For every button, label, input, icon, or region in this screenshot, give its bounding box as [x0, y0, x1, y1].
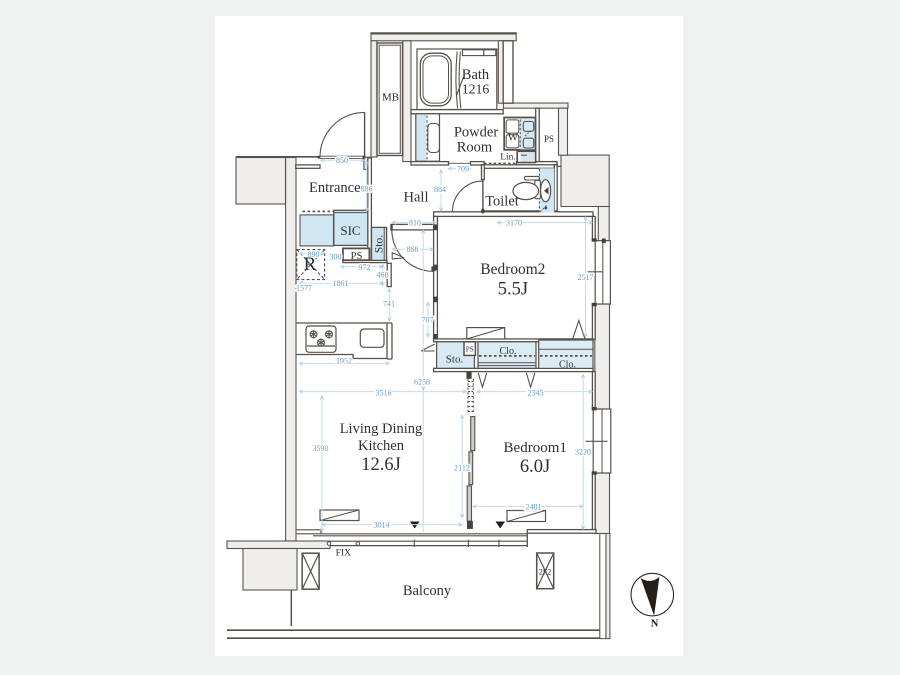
svg-text:3014: 3014: [374, 521, 390, 530]
svg-text:5.5J: 5.5J: [498, 280, 528, 300]
svg-text:2F2: 2F2: [539, 568, 551, 577]
svg-text:850: 850: [336, 156, 348, 165]
svg-text:Room: Room: [457, 140, 493, 156]
svg-text:Clo.: Clo.: [559, 360, 576, 371]
svg-text:SIC: SIC: [340, 223, 360, 238]
svg-text:1861: 1861: [333, 279, 349, 288]
svg-text:Kitchen: Kitchen: [358, 438, 405, 454]
svg-text:707: 707: [422, 316, 434, 325]
svg-text:Living Dining: Living Dining: [340, 421, 423, 437]
svg-text:741: 741: [383, 300, 395, 309]
svg-text:Sto.: Sto.: [374, 235, 386, 253]
svg-text:3590: 3590: [313, 444, 329, 453]
svg-text:Hall: Hall: [404, 190, 429, 206]
svg-text:12.6J: 12.6J: [361, 455, 401, 475]
svg-text:PS: PS: [351, 251, 363, 262]
svg-text:Bedroom2: Bedroom2: [480, 261, 545, 278]
svg-text:6258: 6258: [414, 378, 430, 387]
svg-text:1216: 1216: [462, 82, 490, 97]
svg-text:Sto.: Sto.: [446, 354, 464, 366]
svg-text:810: 810: [409, 219, 421, 228]
svg-text:Lin.: Lin.: [500, 153, 516, 163]
svg-text:Clo.: Clo.: [500, 346, 517, 357]
svg-text:Bedroom1: Bedroom1: [504, 440, 567, 456]
svg-text:Entrance: Entrance: [309, 180, 361, 196]
svg-text:6.0J: 6.0J: [520, 457, 550, 477]
svg-text:468: 468: [377, 270, 389, 279]
svg-text:Toilet: Toilet: [485, 194, 519, 210]
svg-text:1952: 1952: [336, 357, 352, 366]
svg-text:886: 886: [361, 185, 373, 194]
svg-text:MB: MB: [382, 92, 399, 104]
svg-text:Balcony: Balcony: [403, 583, 452, 599]
svg-text:2345: 2345: [528, 389, 544, 398]
svg-text:2481: 2481: [526, 502, 542, 511]
svg-text:Powder: Powder: [454, 125, 498, 141]
svg-text:884: 884: [434, 185, 446, 194]
svg-text:2517: 2517: [578, 273, 594, 282]
svg-text:W: W: [508, 132, 519, 144]
svg-text:868: 868: [407, 245, 419, 254]
svg-text:PS: PS: [544, 134, 554, 144]
svg-text:300: 300: [330, 252, 342, 261]
svg-text:3170: 3170: [506, 219, 522, 228]
svg-text:R: R: [304, 254, 317, 275]
svg-text:3516: 3516: [376, 389, 392, 398]
svg-text:709: 709: [457, 165, 469, 174]
svg-text:FIX: FIX: [336, 549, 351, 559]
svg-text:PS: PS: [466, 346, 474, 354]
svg-text:1577: 1577: [296, 284, 312, 293]
svg-text:N: N: [651, 619, 659, 630]
svg-text:2112: 2112: [454, 464, 470, 473]
svg-text:3220: 3220: [575, 448, 591, 457]
svg-text:972: 972: [359, 263, 371, 272]
